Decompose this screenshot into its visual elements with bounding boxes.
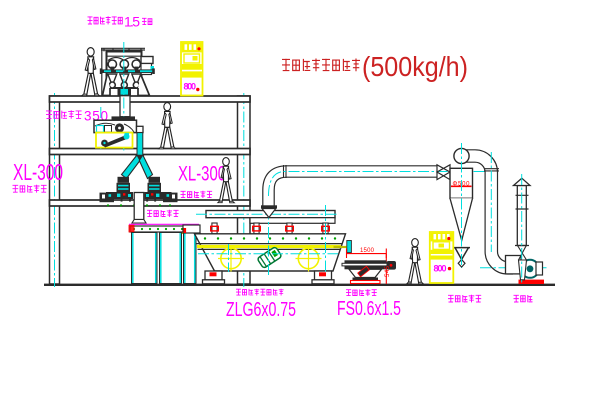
svg-text:FS0.6x1.5: FS0.6x1.5 [337,298,401,320]
svg-text:XL-300: XL-300 [13,159,63,185]
svg-text:1.5: 1.5 [124,14,140,30]
svg-text:1500: 1500 [360,248,375,254]
svg-text:ZLG6x0.75: ZLG6x0.75 [226,299,296,321]
svg-text:800: 800 [184,82,197,92]
svg-text:800: 800 [434,264,447,274]
svg-text:(500kg/h): (500kg/h) [362,51,468,82]
svg-text:545: 545 [385,265,391,277]
svg-text:XL-300: XL-300 [178,163,226,186]
